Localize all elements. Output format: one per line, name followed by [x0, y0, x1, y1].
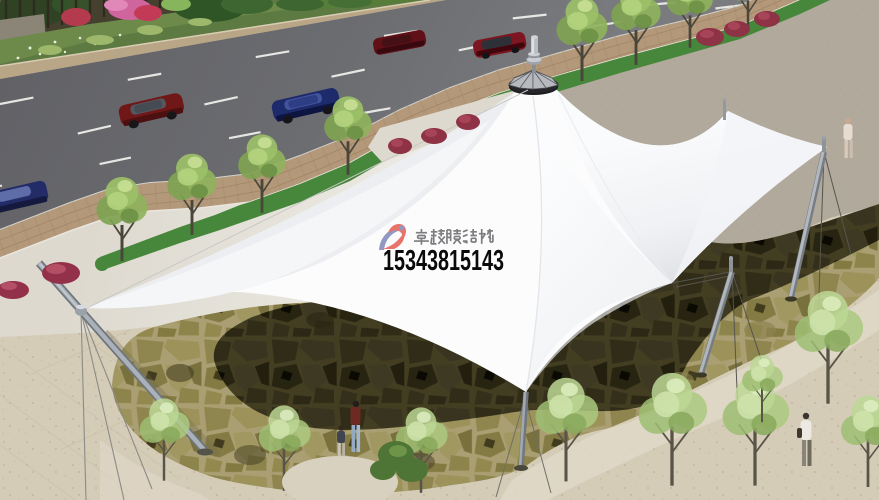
svg-text:15343815143: 15343815143: [383, 245, 504, 277]
